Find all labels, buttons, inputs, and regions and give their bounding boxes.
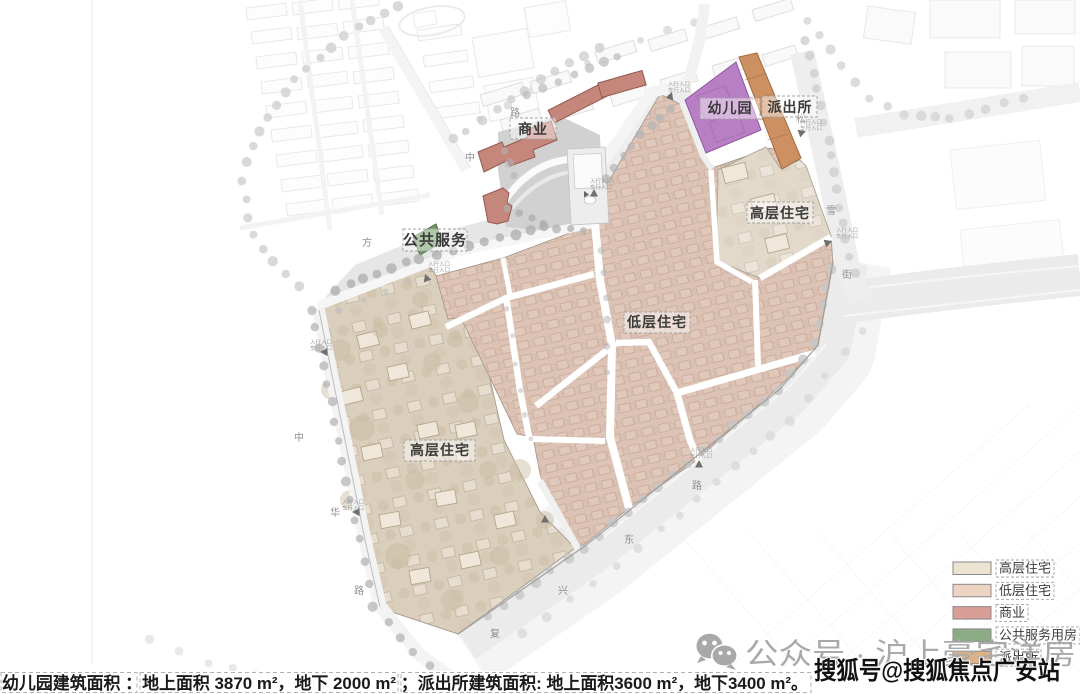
svg-text:幼儿园: 幼儿园 [708,100,753,116]
svg-text:入行入口: 入行入口 [590,177,612,185]
svg-text:低层住宅: 低层住宅 [999,583,1051,598]
svg-text:路: 路 [354,584,364,597]
svg-text:街: 街 [842,268,852,281]
svg-text:东: 东 [624,533,634,546]
svg-text:派出所: 派出所 [768,99,813,115]
svg-text:幼儿园建筑面积 ：地上面积 3870 m²，地下 2000: 幼儿园建筑面积 ：地上面积 3870 m²，地下 2000 m² ；派出所建筑面… [2,673,808,693]
svg-text:方: 方 [362,236,372,249]
svg-text:路: 路 [692,479,702,492]
svg-text:车行入口: 车行入口 [668,86,690,94]
svg-text:复: 复 [490,627,500,640]
svg-text:兴: 兴 [558,585,568,597]
svg-text:入行入口: 入行入口 [836,226,858,234]
svg-text:华: 华 [330,506,340,519]
svg-text:车行入口: 车行入口 [590,183,612,191]
svg-text:车行入口: 车行入口 [836,232,858,240]
svg-text:搜狐号@搜狐焦点广安站: 搜狐号@搜狐焦点广安站 [814,656,1060,685]
svg-text:车行入口: 车行入口 [310,344,332,352]
svg-text:中: 中 [465,151,475,164]
svg-text:高层住宅: 高层住宅 [999,561,1051,576]
svg-text:高层住宅: 高层住宅 [750,205,810,221]
svg-text:路: 路 [510,106,520,119]
svg-text:入行入口: 入行入口 [690,446,712,454]
svg-text:中: 中 [294,431,304,444]
svg-text:低层住宅: 低层住宅 [626,314,687,330]
svg-text:高层住宅: 高层住宅 [410,442,470,458]
svg-text:车行入口: 车行入口 [428,266,450,274]
svg-text:入行入口: 入行入口 [310,338,332,346]
svg-text:车行入口: 车行入口 [342,504,364,512]
svg-text:公共服务: 公共服务 [403,231,467,249]
svg-text:入行入口: 入行入口 [800,118,822,126]
svg-text:商业: 商业 [518,121,548,137]
svg-text:入行入口: 入行入口 [428,260,450,268]
svg-text:入行入口: 入行入口 [342,498,364,506]
svg-text:车行入口: 车行入口 [690,452,712,460]
svg-text:雪: 雪 [826,205,836,217]
svg-text:入行入口: 入行入口 [668,80,690,88]
svg-text:商业: 商业 [999,605,1025,620]
svg-text:车行入口: 车行入口 [800,124,822,132]
